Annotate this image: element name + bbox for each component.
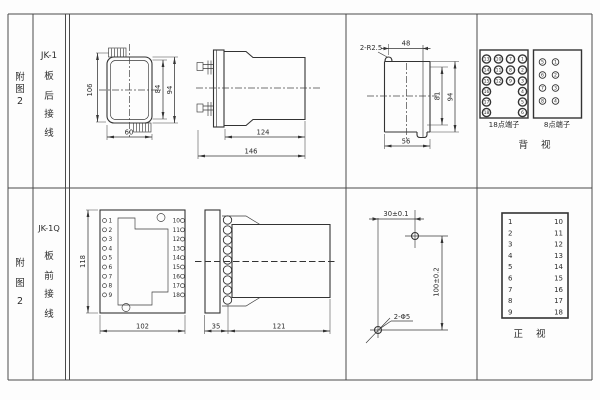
- svg-text:4: 4: [521, 89, 524, 95]
- wiring-char: 板: [44, 70, 54, 82]
- svg-text:13: 13: [173, 246, 181, 252]
- svg-text:11: 11: [173, 228, 181, 234]
- svg-text:2: 2: [109, 228, 113, 234]
- svg-text:17: 17: [554, 297, 563, 305]
- dim-106: 106: [86, 84, 94, 97]
- svg-text:12: 12: [496, 79, 502, 85]
- svg-text:9: 9: [109, 293, 113, 299]
- svg-text:14: 14: [554, 263, 563, 271]
- svg-text:17: 17: [173, 284, 181, 290]
- wiring-char: 后: [44, 91, 54, 102]
- right-terminal-numbers: 10 11 12 13 14 15 16 17 18: [173, 219, 181, 299]
- terminal-numbers: 13 14 15 16 17 18 10 11 12 7 8 9 1 2 3 4…: [484, 57, 524, 116]
- mounting-tab: [385, 57, 392, 62]
- svg-text:14: 14: [484, 68, 490, 74]
- dim-94: 94: [166, 86, 174, 95]
- svg-text:7: 7: [541, 86, 544, 92]
- rear-view-label: 背 视: [518, 139, 555, 151]
- bottom-figure-label: 附 图 2: [15, 257, 25, 307]
- base-front-view: 1 2 3 4 5 6 7 8 9 10 11 12 13 14 15 16 1…: [79, 210, 185, 334]
- hole-leader: [380, 321, 414, 329]
- svg-text:1: 1: [521, 57, 524, 63]
- figure-char: 2: [17, 296, 23, 307]
- svg-text:6: 6: [508, 275, 513, 283]
- panel-cutout-view: 2-R2.5 48 81 94 56: [360, 40, 459, 149]
- terminal8-label: 8点端子: [544, 120, 570, 129]
- dim-124: 124: [257, 129, 270, 137]
- svg-text:5: 5: [521, 100, 524, 106]
- center-lines: [367, 63, 437, 141]
- mounting-hole: [157, 214, 165, 222]
- svg-text:7: 7: [509, 57, 512, 63]
- svg-text:15: 15: [173, 265, 181, 271]
- svg-text:8: 8: [541, 99, 544, 105]
- svg-text:2: 2: [521, 68, 524, 74]
- wiring-char: 前: [44, 270, 54, 282]
- dim-48: 48: [402, 40, 411, 48]
- svg-text:4: 4: [109, 246, 113, 252]
- top-model-label: JK-1 板 后 接 线: [40, 51, 57, 139]
- radius-note: 2-R2.5: [360, 44, 382, 52]
- wiring-char: 板: [44, 250, 54, 262]
- dim-35: 35: [212, 323, 221, 331]
- svg-text:14: 14: [173, 256, 181, 262]
- dim-81: 81: [434, 92, 442, 101]
- technical-drawing-sheet: 附 图 2 JK-1 板 后 接 线 106 84 94 60: [0, 0, 600, 400]
- svg-text:8: 8: [508, 297, 512, 305]
- figure-char: 附: [15, 71, 25, 83]
- svg-text:15: 15: [554, 275, 563, 283]
- drill-hole-plan: 30±0.1 100±0.2 2-Φ5: [366, 210, 448, 343]
- svg-text:2: 2: [554, 73, 557, 79]
- top-figure-label: 附 图 2: [15, 71, 25, 107]
- svg-text:7: 7: [508, 286, 512, 294]
- mounting-bolt-top: [197, 61, 214, 75]
- wiring-char: 线: [44, 127, 54, 139]
- case-body: [224, 52, 305, 126]
- svg-text:1: 1: [109, 219, 113, 225]
- figure-char: 2: [17, 96, 23, 107]
- svg-text:16: 16: [173, 274, 181, 280]
- svg-text:5: 5: [508, 263, 512, 271]
- svg-text:9: 9: [508, 308, 512, 316]
- svg-text:12: 12: [173, 237, 181, 243]
- wiring-char: 接: [44, 108, 54, 120]
- inner-contour: [118, 218, 168, 305]
- case-side-view: 124 146: [196, 50, 322, 159]
- hole-note: 2-Φ5: [394, 313, 410, 321]
- svg-text:11: 11: [496, 68, 502, 74]
- svg-text:10: 10: [496, 57, 502, 63]
- front-view-label: 正 视: [513, 328, 550, 340]
- svg-text:18: 18: [554, 308, 563, 316]
- table-grid: [8, 14, 592, 380]
- model-name: JK-1Q: [37, 223, 60, 233]
- dim-118: 118: [79, 255, 87, 268]
- dim-121: 121: [273, 323, 286, 331]
- dim-94: 94: [447, 93, 455, 102]
- svg-text:15: 15: [484, 79, 490, 85]
- figure-char: 图: [15, 84, 25, 95]
- case-front-view: 106 84 94 60: [86, 44, 178, 140]
- svg-text:4: 4: [508, 252, 513, 260]
- svg-text:11: 11: [554, 229, 563, 237]
- dim-30: 30±0.1: [383, 210, 408, 218]
- svg-text:5: 5: [109, 256, 113, 262]
- dim-146: 146: [245, 148, 258, 156]
- svg-text:10: 10: [173, 219, 181, 225]
- figure-char: 图: [15, 278, 25, 289]
- model-name: JK-1: [40, 51, 57, 61]
- svg-text:13: 13: [554, 252, 563, 260]
- terminal-screws: [223, 216, 231, 304]
- drawing-canvas: 附 图 2 JK-1 板 后 接 线 106 84 94 60: [0, 0, 600, 400]
- svg-text:6: 6: [521, 110, 524, 116]
- svg-text:4: 4: [554, 99, 557, 105]
- svg-text:6: 6: [109, 265, 113, 271]
- terminal-block-18: 13 14 15 16 17 18 10 11 12 7 8 9 1 2 3 4…: [480, 50, 528, 129]
- svg-text:16: 16: [484, 89, 490, 95]
- svg-text:3: 3: [521, 79, 524, 85]
- dim-84: 84: [154, 85, 162, 94]
- svg-text:3: 3: [109, 237, 113, 243]
- dim-60: 60: [125, 129, 134, 137]
- terminal18-label: 18点端子: [489, 120, 520, 129]
- bottom-model-label: JK-1Q 板 前 接 线: [37, 223, 60, 320]
- svg-text:13: 13: [484, 57, 490, 63]
- svg-text:7: 7: [109, 274, 113, 280]
- wiring-char: 线: [44, 308, 54, 320]
- terminal-studs: [482, 55, 526, 117]
- svg-text:18: 18: [484, 110, 490, 116]
- svg-text:6: 6: [541, 73, 544, 79]
- svg-text:3: 3: [508, 241, 512, 249]
- svg-text:10: 10: [554, 218, 563, 226]
- figure-char: 附: [15, 257, 25, 269]
- svg-text:12: 12: [554, 241, 563, 249]
- svg-text:3: 3: [554, 86, 557, 92]
- svg-text:16: 16: [554, 286, 563, 294]
- wiring-char: 接: [44, 288, 54, 300]
- mounting-bolt-bottom: [197, 102, 214, 116]
- radius-leader: [378, 52, 388, 58]
- left-terminal-numbers: 1 2 3 4 5 6 7 8 9: [109, 219, 113, 299]
- table-right-column: 10 11 12 13 14 15 16 17 18: [554, 218, 563, 316]
- svg-text:5: 5: [541, 60, 544, 66]
- base-side-view: 35 121: [195, 210, 336, 334]
- dim-100: 100±0.2: [433, 267, 441, 296]
- svg-text:8: 8: [109, 284, 113, 290]
- top-connector-hatch: [109, 48, 127, 57]
- svg-text:8: 8: [509, 68, 512, 74]
- svg-text:1: 1: [508, 218, 512, 226]
- bottom-connector-hatch: [134, 123, 152, 132]
- front-terminal-table: 1 2 3 4 5 6 7 8 9 10 11 12 13 14 15 16 1…: [502, 213, 568, 340]
- dim-56: 56: [402, 138, 411, 146]
- svg-text:18: 18: [173, 293, 181, 299]
- terminal-block-8: 5 6 7 8 1 2 3 4 8点端子: [534, 50, 582, 129]
- dim-102: 102: [136, 323, 149, 331]
- svg-text:9: 9: [509, 79, 512, 85]
- svg-text:2: 2: [508, 229, 512, 237]
- svg-text:17: 17: [484, 100, 490, 106]
- table-left-column: 1 2 3 4 5 6 7 8 9: [508, 218, 513, 316]
- svg-text:1: 1: [554, 60, 557, 66]
